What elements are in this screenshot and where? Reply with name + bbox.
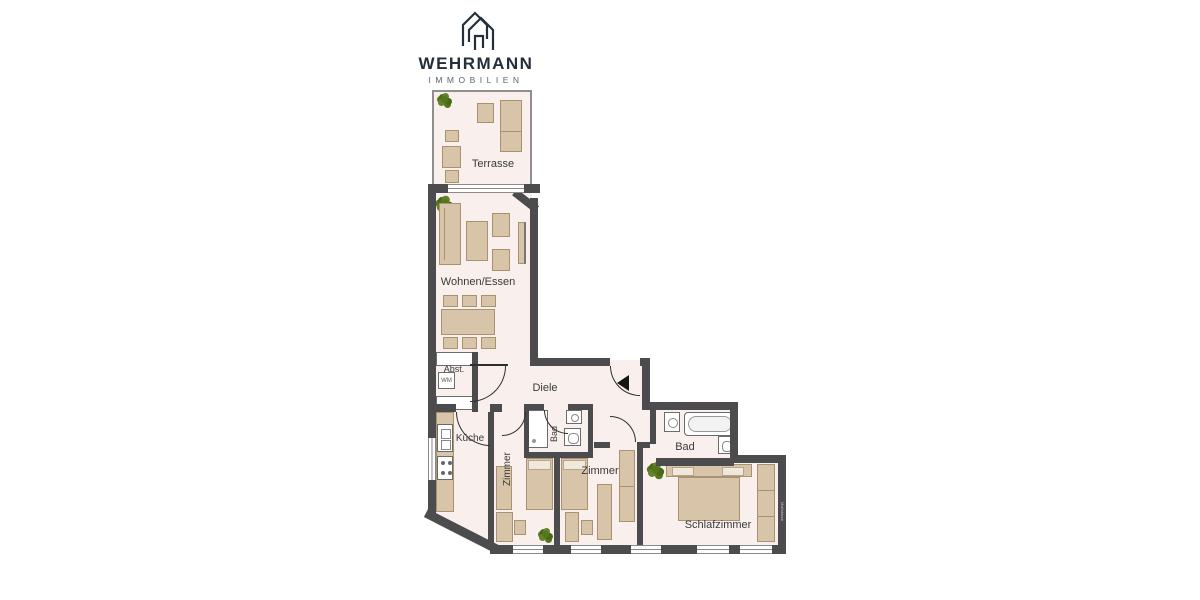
dining-chair	[443, 337, 458, 349]
brand-logo: WEHRMANN IMMOBILIEN	[396, 6, 556, 85]
dining-chair	[462, 337, 477, 349]
dining-chair	[481, 295, 496, 307]
dining-chair	[443, 295, 458, 307]
sofa-seat-line	[444, 208, 445, 260]
wall-segment	[650, 410, 656, 444]
window	[740, 545, 772, 554]
room-label-abstellraum: Abst.	[438, 364, 470, 374]
wall-segment	[436, 404, 456, 412]
window	[631, 545, 661, 554]
logo-house-icon	[453, 6, 499, 52]
room-label-wohnen-essen: Wohnen/Essen	[432, 276, 524, 288]
shower-drain	[532, 439, 536, 443]
terrace-lounger	[500, 100, 522, 152]
washing-machine: WM	[438, 372, 455, 389]
wardrobe	[597, 484, 612, 540]
dining-chair	[481, 337, 496, 349]
wall-segment	[656, 458, 734, 466]
bathtub-basin	[688, 416, 732, 432]
wall-segment	[530, 358, 610, 366]
terrace-stool	[445, 130, 459, 142]
window	[697, 545, 729, 554]
room-label-terrasse: Terrasse	[460, 158, 526, 170]
entrance-arrow-icon	[617, 375, 629, 391]
desk	[565, 512, 579, 542]
wall-segment	[530, 198, 538, 366]
brand-subtitle: IMMOBILIEN	[396, 75, 556, 85]
wall-segment	[554, 458, 560, 545]
window	[513, 545, 543, 554]
plant-icon	[651, 465, 659, 473]
plant-icon	[441, 96, 448, 103]
room-label-bad-klein: Bad	[549, 418, 559, 450]
floorplan-page: WEHRMANN IMMOBILIEN	[0, 0, 1200, 600]
wall-segment	[588, 404, 593, 458]
basin-bowl	[668, 418, 678, 428]
pillow	[722, 467, 744, 476]
basin-bowl	[571, 414, 579, 422]
desk-chair	[514, 520, 526, 535]
wall-segment	[730, 402, 738, 460]
wall-segment	[642, 402, 738, 410]
desk	[496, 512, 513, 542]
wall-segment	[642, 358, 650, 408]
stove-burners	[441, 461, 445, 465]
terrace-table	[477, 103, 494, 123]
washbasin	[566, 410, 582, 424]
wardrobe-divider	[758, 516, 774, 517]
window	[448, 184, 524, 193]
toilet-bowl	[568, 433, 579, 444]
room-label-zimmer-1: Zimmer	[502, 440, 513, 498]
pillow	[528, 460, 551, 470]
terrace-lounger-fold	[501, 131, 521, 132]
armchair	[492, 213, 510, 237]
wall-segment	[568, 404, 593, 410]
wardrobe-divider	[620, 486, 634, 487]
room-label-schlafzimmer: Schlafzimmer	[672, 519, 764, 531]
wardrobe-divider	[758, 490, 774, 491]
dining-table	[441, 309, 495, 335]
room-label-diele: Diele	[520, 382, 570, 394]
wall-segment	[594, 442, 610, 448]
armchair	[492, 249, 510, 271]
wall-segment	[490, 404, 502, 412]
wall-segment	[637, 448, 643, 545]
room-label-kueche: Küche	[448, 433, 492, 444]
double-bed	[678, 477, 740, 521]
sofa	[439, 203, 461, 265]
coffee-table	[466, 221, 488, 261]
pillow	[672, 467, 694, 476]
room-label-bad-gross: Bad	[665, 441, 705, 453]
desk-chair	[581, 520, 593, 535]
washbasin	[664, 412, 680, 432]
terrace-chair	[442, 146, 461, 168]
window	[571, 545, 601, 554]
wall-segment	[524, 404, 544, 410]
dining-chair	[462, 295, 477, 307]
plan-watermark: Maßskizze	[780, 502, 785, 521]
plant-icon	[542, 531, 549, 538]
terrace-stool	[445, 170, 459, 183]
room-label-zimmer-2: Zimmer	[570, 465, 630, 477]
tv-sideboard	[518, 222, 526, 264]
window	[428, 438, 436, 480]
bathtub	[684, 412, 736, 436]
brand-name: WEHRMANN	[396, 54, 556, 74]
stove	[437, 456, 453, 480]
